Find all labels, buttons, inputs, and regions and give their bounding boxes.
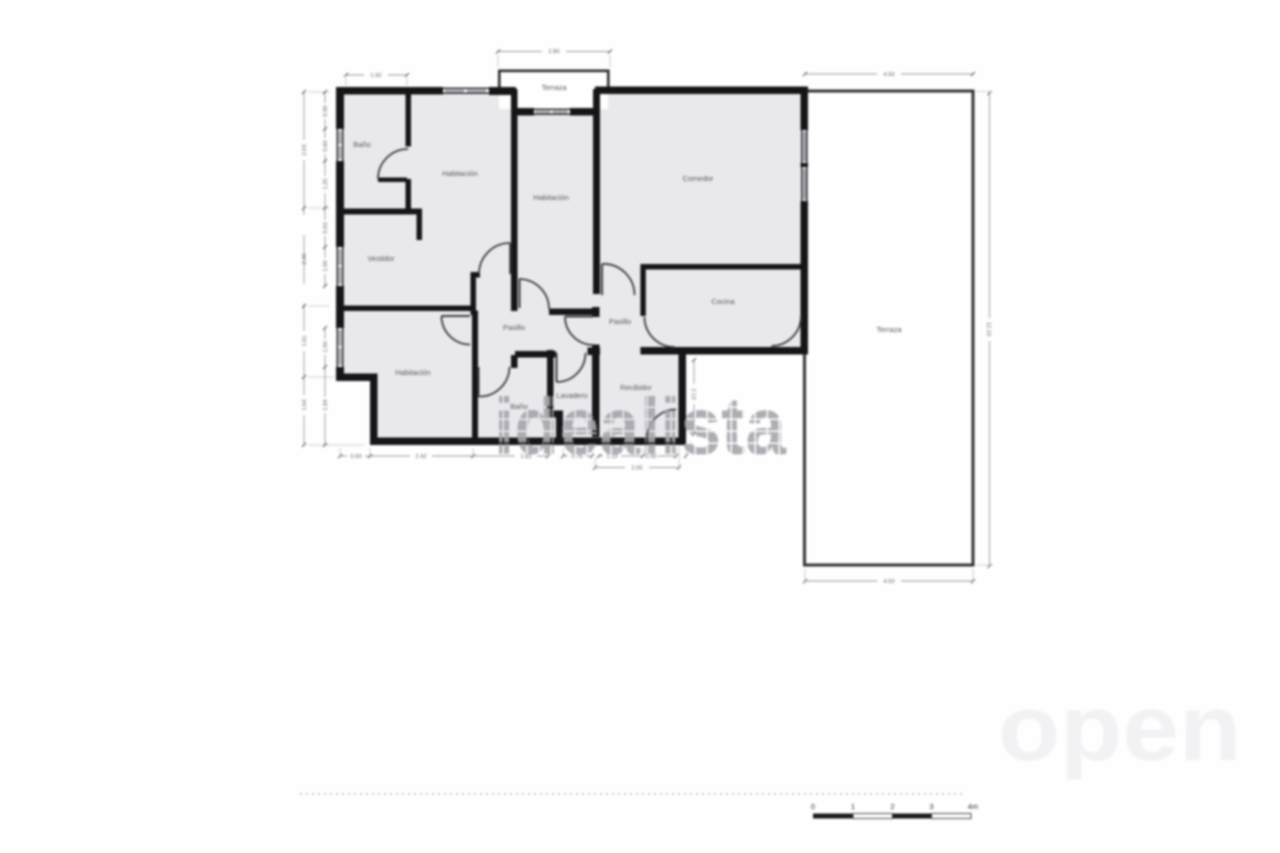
svg-text:12.10: 12.10 — [985, 322, 991, 337]
svg-text:0.60: 0.60 — [323, 140, 329, 151]
svg-text:Pasillo: Pasillo — [609, 317, 631, 326]
svg-text:2.03: 2.03 — [302, 144, 308, 155]
svg-text:1: 1 — [851, 802, 855, 811]
svg-text:Habitación: Habitación — [395, 368, 430, 377]
svg-text:0.83: 0.83 — [323, 222, 329, 233]
svg-text:0.93: 0.93 — [350, 454, 361, 460]
svg-text:2.80: 2.80 — [548, 49, 559, 55]
svg-text:Habitación: Habitación — [533, 193, 568, 202]
svg-text:4.50: 4.50 — [883, 72, 894, 78]
svg-text:1.00: 1.00 — [323, 341, 329, 352]
svg-text:1.92: 1.92 — [370, 73, 381, 79]
svg-text:Habitación: Habitación — [442, 169, 477, 178]
svg-text:Pasillo: Pasillo — [503, 323, 525, 332]
svg-text:idealista: idealista — [494, 381, 787, 472]
svg-text:4m: 4m — [968, 802, 978, 811]
svg-text:2: 2 — [890, 802, 894, 811]
svg-text:0: 0 — [811, 802, 815, 811]
svg-text:1.25: 1.25 — [323, 178, 329, 189]
svg-text:Terraza: Terraza — [876, 325, 902, 334]
svg-text:Vestidor: Vestidor — [367, 254, 395, 263]
svg-text:2.42: 2.42 — [415, 454, 426, 460]
svg-text:Terraza: Terraza — [541, 83, 567, 92]
svg-text:Cocina: Cocina — [711, 297, 735, 306]
svg-text:Baño: Baño — [353, 140, 371, 149]
svg-text:1.84: 1.84 — [323, 399, 329, 411]
svg-text:open: open — [998, 675, 1241, 780]
svg-text:1.00: 1.00 — [323, 260, 329, 271]
svg-text:0.90: 0.90 — [323, 105, 329, 116]
svg-text:1.64: 1.64 — [302, 399, 308, 411]
svg-text:2.40: 2.40 — [302, 253, 308, 264]
svg-text:1.61: 1.61 — [302, 335, 308, 346]
svg-text:3: 3 — [929, 802, 933, 811]
svg-text:4.50: 4.50 — [883, 579, 894, 585]
svg-text:Comedor: Comedor — [683, 174, 714, 183]
